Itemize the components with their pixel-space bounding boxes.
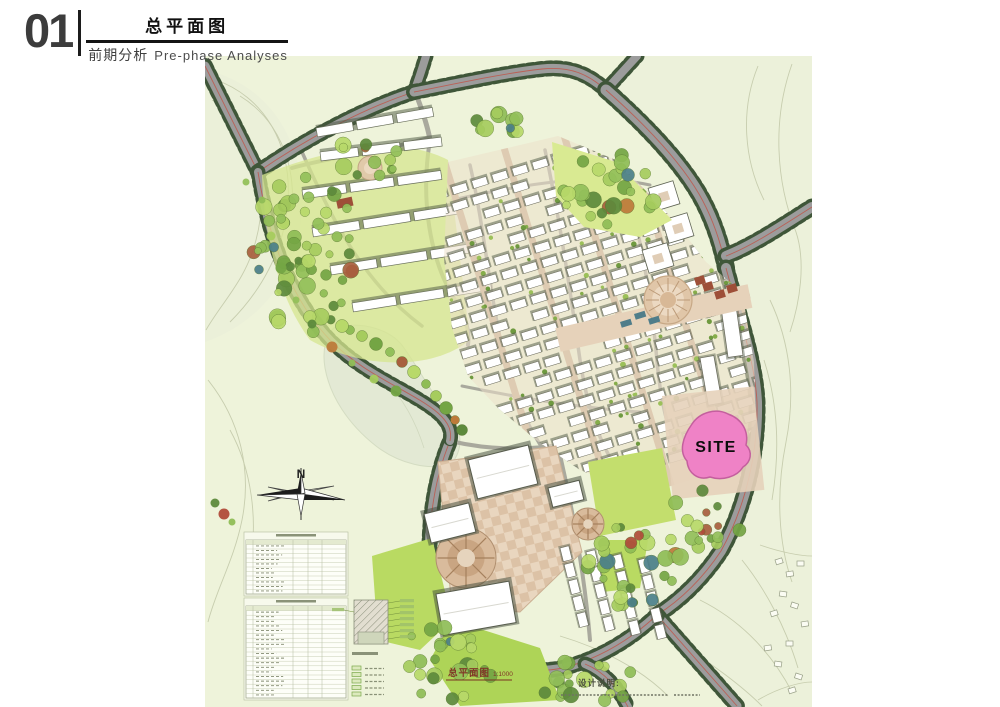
page-title: 总平面图 bbox=[86, 12, 288, 43]
section-number: 01 bbox=[24, 6, 72, 56]
page-header: 01 总平面图 前期分析Pre-phase Analyses bbox=[24, 6, 288, 65]
master-plan-map: SITE N 总平面图 1:1000 设计说明: bbox=[0, 0, 1000, 707]
section-subtitle: 前期分析Pre-phase Analyses bbox=[86, 43, 288, 65]
section-name-en: Pre-phase Analyses bbox=[154, 48, 288, 63]
site-label: SITE bbox=[695, 439, 737, 456]
presentation-page: 01 总平面图 前期分析Pre-phase Analyses bbox=[0, 0, 1000, 707]
section-name-cn: 前期分析 bbox=[88, 47, 148, 63]
header-divider bbox=[78, 10, 81, 56]
scale-ratio: 1:1000 bbox=[493, 671, 513, 678]
north-label: N bbox=[297, 467, 306, 481]
design-notes-title: 设计说明: bbox=[578, 678, 620, 688]
scale-caption: 总平面图 bbox=[448, 667, 490, 679]
